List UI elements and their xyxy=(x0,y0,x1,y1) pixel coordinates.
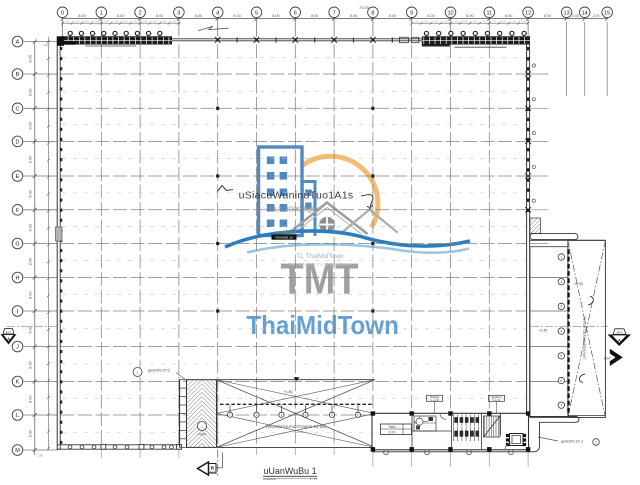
svg-text:uSiacuWuninuTuo1A1s: uSiacuWuninuTuo1A1s xyxy=(239,190,354,202)
svg-text:D: D xyxy=(16,139,20,145)
svg-text:8.00: 8.00 xyxy=(156,14,163,18)
svg-text:M: M xyxy=(15,448,20,454)
svg-text:B: B xyxy=(16,72,20,78)
svg-text:A=01: A=01 xyxy=(617,331,623,334)
svg-text:8.00: 8.00 xyxy=(117,14,124,18)
svg-text:1: 1 xyxy=(560,255,562,259)
svg-text:L: L xyxy=(16,413,19,419)
svg-text:9: 9 xyxy=(410,10,413,16)
svg-text:8.00: 8.00 xyxy=(29,55,33,62)
svg-text:C: C xyxy=(16,106,20,112)
svg-text:7aeu: 7aeu xyxy=(388,425,395,429)
svg-text:ROUNBE 18: ROUNBE 18 xyxy=(275,236,292,240)
svg-text:2: 2 xyxy=(139,10,142,16)
svg-text:1.50: 1.50 xyxy=(37,454,43,458)
svg-text:13: 13 xyxy=(564,10,570,16)
svg-text:+1.80: +1.80 xyxy=(283,390,292,394)
svg-text:1: 1 xyxy=(100,10,103,16)
svg-text:ThaiMidTown: ThaiMidTown xyxy=(246,310,399,340)
svg-text:(WuValnA1uAapTnagVu 51-5u): (WuValnA1uAapTnagVu 51-5u) xyxy=(266,424,326,429)
svg-text:10: 10 xyxy=(447,10,453,16)
svg-text:+1.45: +1.45 xyxy=(539,329,548,333)
svg-text:E: E xyxy=(16,174,20,180)
svg-text:8.00: 8.00 xyxy=(544,14,551,18)
svg-text:8.00: 8.00 xyxy=(29,292,33,299)
svg-text:0: 0 xyxy=(61,10,64,16)
svg-text:8.00: 8.00 xyxy=(29,361,33,368)
svg-text:uUanWuBu 1: uUanWuBu 1 xyxy=(263,466,316,476)
svg-text:2.00: 2.00 xyxy=(593,14,600,18)
svg-text:15: 15 xyxy=(604,10,610,16)
svg-text:ganshTa ST-1: ganshTa ST-1 xyxy=(561,440,583,444)
svg-text:S 1:100: S 1:100 xyxy=(492,399,501,402)
svg-text:LL= 3000 kg/m²: LL= 3000 kg/m² xyxy=(270,205,323,214)
svg-text:8.00: 8.00 xyxy=(29,258,33,265)
svg-text:7: 7 xyxy=(333,10,336,16)
svg-text:8.00: 8.00 xyxy=(233,14,240,18)
svg-text:EXIT: EXIT xyxy=(604,356,611,360)
svg-text:8.00: 8.00 xyxy=(29,430,33,437)
svg-text:8.00: 8.00 xyxy=(272,14,279,18)
svg-text:2.00: 2.00 xyxy=(572,14,579,18)
svg-text:8.00: 8.00 xyxy=(29,224,33,231)
svg-text:8.00: 8.00 xyxy=(29,326,33,333)
svg-text:J: J xyxy=(16,345,19,351)
svg-text:7: 7 xyxy=(560,404,562,408)
svg-text:K: K xyxy=(16,380,20,386)
svg-text:A: A xyxy=(16,40,20,46)
svg-text:4: 4 xyxy=(216,10,219,16)
svg-text:THE REAL ESTATE COMPANY: THE REAL ESTATE COMPANY xyxy=(288,262,352,267)
svg-text:12: 12 xyxy=(525,10,531,16)
svg-text:8: 8 xyxy=(371,10,374,16)
svg-text:S 1:100: S 1:100 xyxy=(430,399,439,402)
svg-text:8.00: 8.00 xyxy=(427,14,434,18)
svg-text:8.00: 8.00 xyxy=(78,14,85,18)
svg-text:8.00: 8.00 xyxy=(29,122,33,129)
svg-text:ganshTa ST-2: ganshTa ST-2 xyxy=(148,368,170,372)
svg-text:6: 6 xyxy=(560,379,562,383)
svg-text:A=01: A=01 xyxy=(6,331,12,334)
svg-text:14: 14 xyxy=(582,10,588,16)
svg-text:[)]=[8]: [)]=[8] xyxy=(389,430,396,434)
svg-text:6: 6 xyxy=(294,10,297,16)
svg-text:+0.45: +0.45 xyxy=(296,430,304,434)
svg-text:+0.00: +0.00 xyxy=(574,282,583,286)
svg-text:8.00: 8.00 xyxy=(29,156,33,163)
svg-text:TL ThaiMidTown: TL ThaiMidTown xyxy=(296,253,344,260)
svg-text:8.00: 8.00 xyxy=(29,89,33,96)
svg-text:5: 5 xyxy=(255,10,258,16)
svg-text:8.00: 8.00 xyxy=(466,14,473,18)
svg-text:3: 3 xyxy=(560,305,562,309)
svg-text:8.00: 8.00 xyxy=(389,14,396,18)
svg-text:usbnsuuu: usbnsuuu xyxy=(275,229,292,234)
svg-text:8.00: 8.00 xyxy=(505,14,512,18)
svg-text:8.00: 8.00 xyxy=(195,14,202,18)
svg-text:H: H xyxy=(16,276,20,282)
svg-text:5: 5 xyxy=(560,354,562,358)
svg-text:G: G xyxy=(15,242,19,248)
svg-text:11: 11 xyxy=(486,10,492,16)
svg-text:8.00: 8.00 xyxy=(350,14,357,18)
svg-text:8.00: 8.00 xyxy=(29,396,33,403)
svg-text:8.00: 8.00 xyxy=(311,14,318,18)
svg-text:3: 3 xyxy=(177,10,180,16)
svg-text:0.40: 0.40 xyxy=(43,44,48,47)
svg-text:4: 4 xyxy=(560,329,562,333)
svg-text:8.00: 8.00 xyxy=(29,190,33,197)
svg-text:nnabsn: nnabsn xyxy=(198,432,207,436)
svg-text:(WuVa9pO50 81u81a1): (WuVa9pO50 81u81a1) xyxy=(582,316,587,359)
svg-text:2: 2 xyxy=(560,280,562,284)
